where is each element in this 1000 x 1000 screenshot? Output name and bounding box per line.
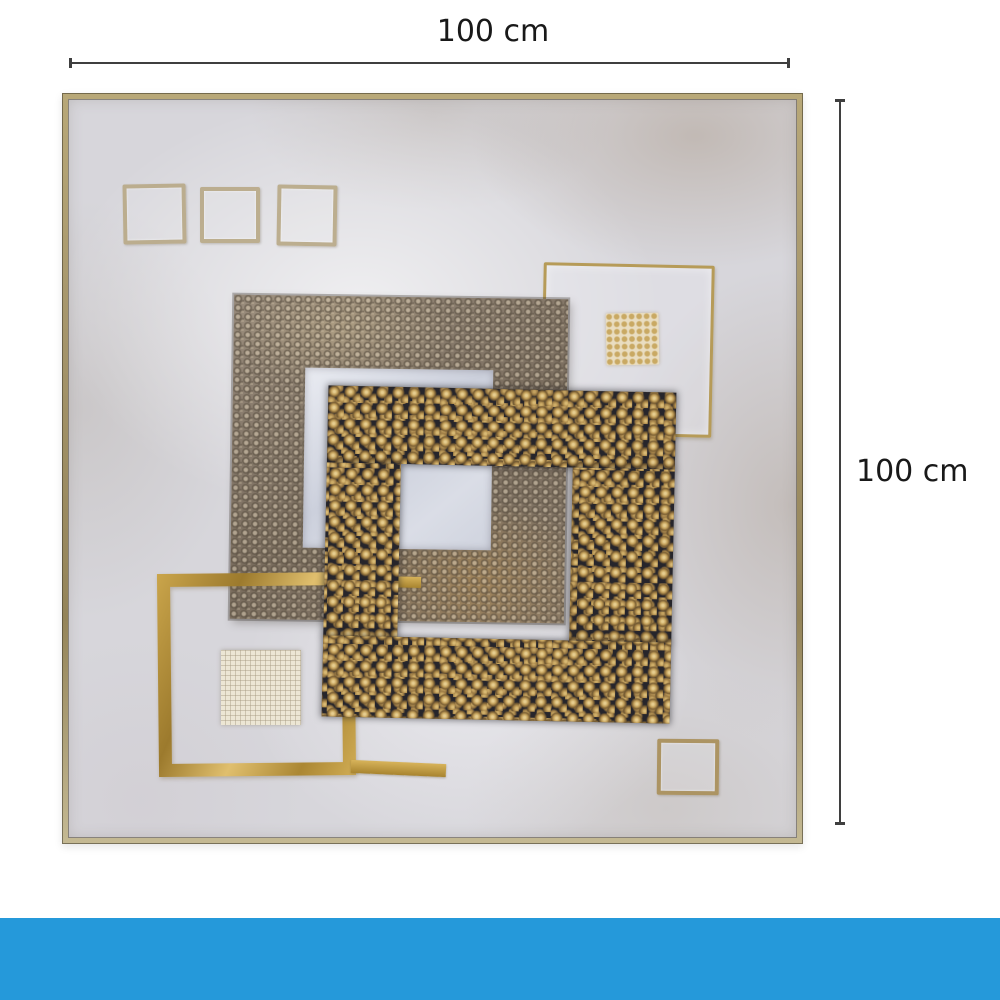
- product-dimension-image: 100 cm 100 cm: [0, 0, 1000, 1000]
- pebble-square: [322, 385, 677, 723]
- artwork-canvas: [68, 99, 797, 838]
- footer-banner: AB Shw-367: [0, 918, 1000, 1000]
- pebble-band-left: [323, 462, 401, 637]
- woven-inlay-square: [221, 650, 301, 725]
- width-dimension-label: 100 cm: [378, 17, 608, 47]
- outline-square-small-1: [122, 183, 186, 244]
- pebble-band-right: [569, 468, 675, 643]
- artwork-frame: [62, 93, 803, 844]
- outline-square-small-3: [276, 184, 337, 246]
- height-dimension-line: [839, 100, 841, 824]
- outline-square-small-2: [200, 187, 260, 243]
- outline-square-bottom-right: [657, 739, 720, 796]
- pebble-band-top: [327, 385, 677, 469]
- width-dimension-line: [70, 62, 789, 64]
- pebble-band-bottom: [322, 635, 672, 723]
- height-dimension-label: 100 cm: [856, 457, 1000, 487]
- dotted-inlay-square: [606, 313, 660, 366]
- gold-strip-bottom: [351, 760, 446, 777]
